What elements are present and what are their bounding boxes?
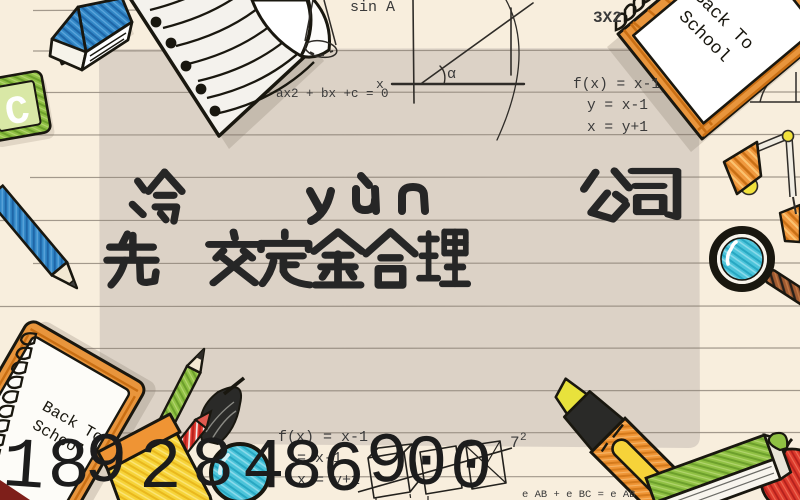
svg-text:ax2 + bx +c = 0: ax2 + bx +c = 0	[276, 87, 389, 101]
svg-text:2: 2	[520, 432, 527, 444]
svg-text:7: 7	[510, 434, 520, 452]
svg-text:9: 9	[81, 421, 130, 500]
svg-text:0: 0	[405, 426, 448, 500]
svg-text:8: 8	[278, 428, 325, 500]
svg-text:2: 2	[139, 429, 182, 500]
svg-text:4: 4	[242, 429, 285, 500]
svg-text:f(x) = x-1: f(x) = x-1	[573, 77, 660, 93]
svg-text:8: 8	[189, 426, 236, 500]
svg-text:1: 1	[0, 427, 48, 500]
svg-text:sin A: sin A	[350, 0, 395, 16]
svg-text:6: 6	[322, 432, 365, 500]
svg-text:3X2: 3X2	[593, 9, 622, 27]
svg-text:α: α	[447, 66, 456, 83]
svg-text:y = x-1: y = x-1	[587, 98, 648, 114]
svg-text:e AB + e BC = e AB: e AB + e BC = e AB	[522, 489, 635, 500]
svg-text:0: 0	[447, 428, 494, 500]
svg-text:x = y+1: x = y+1	[587, 120, 648, 136]
